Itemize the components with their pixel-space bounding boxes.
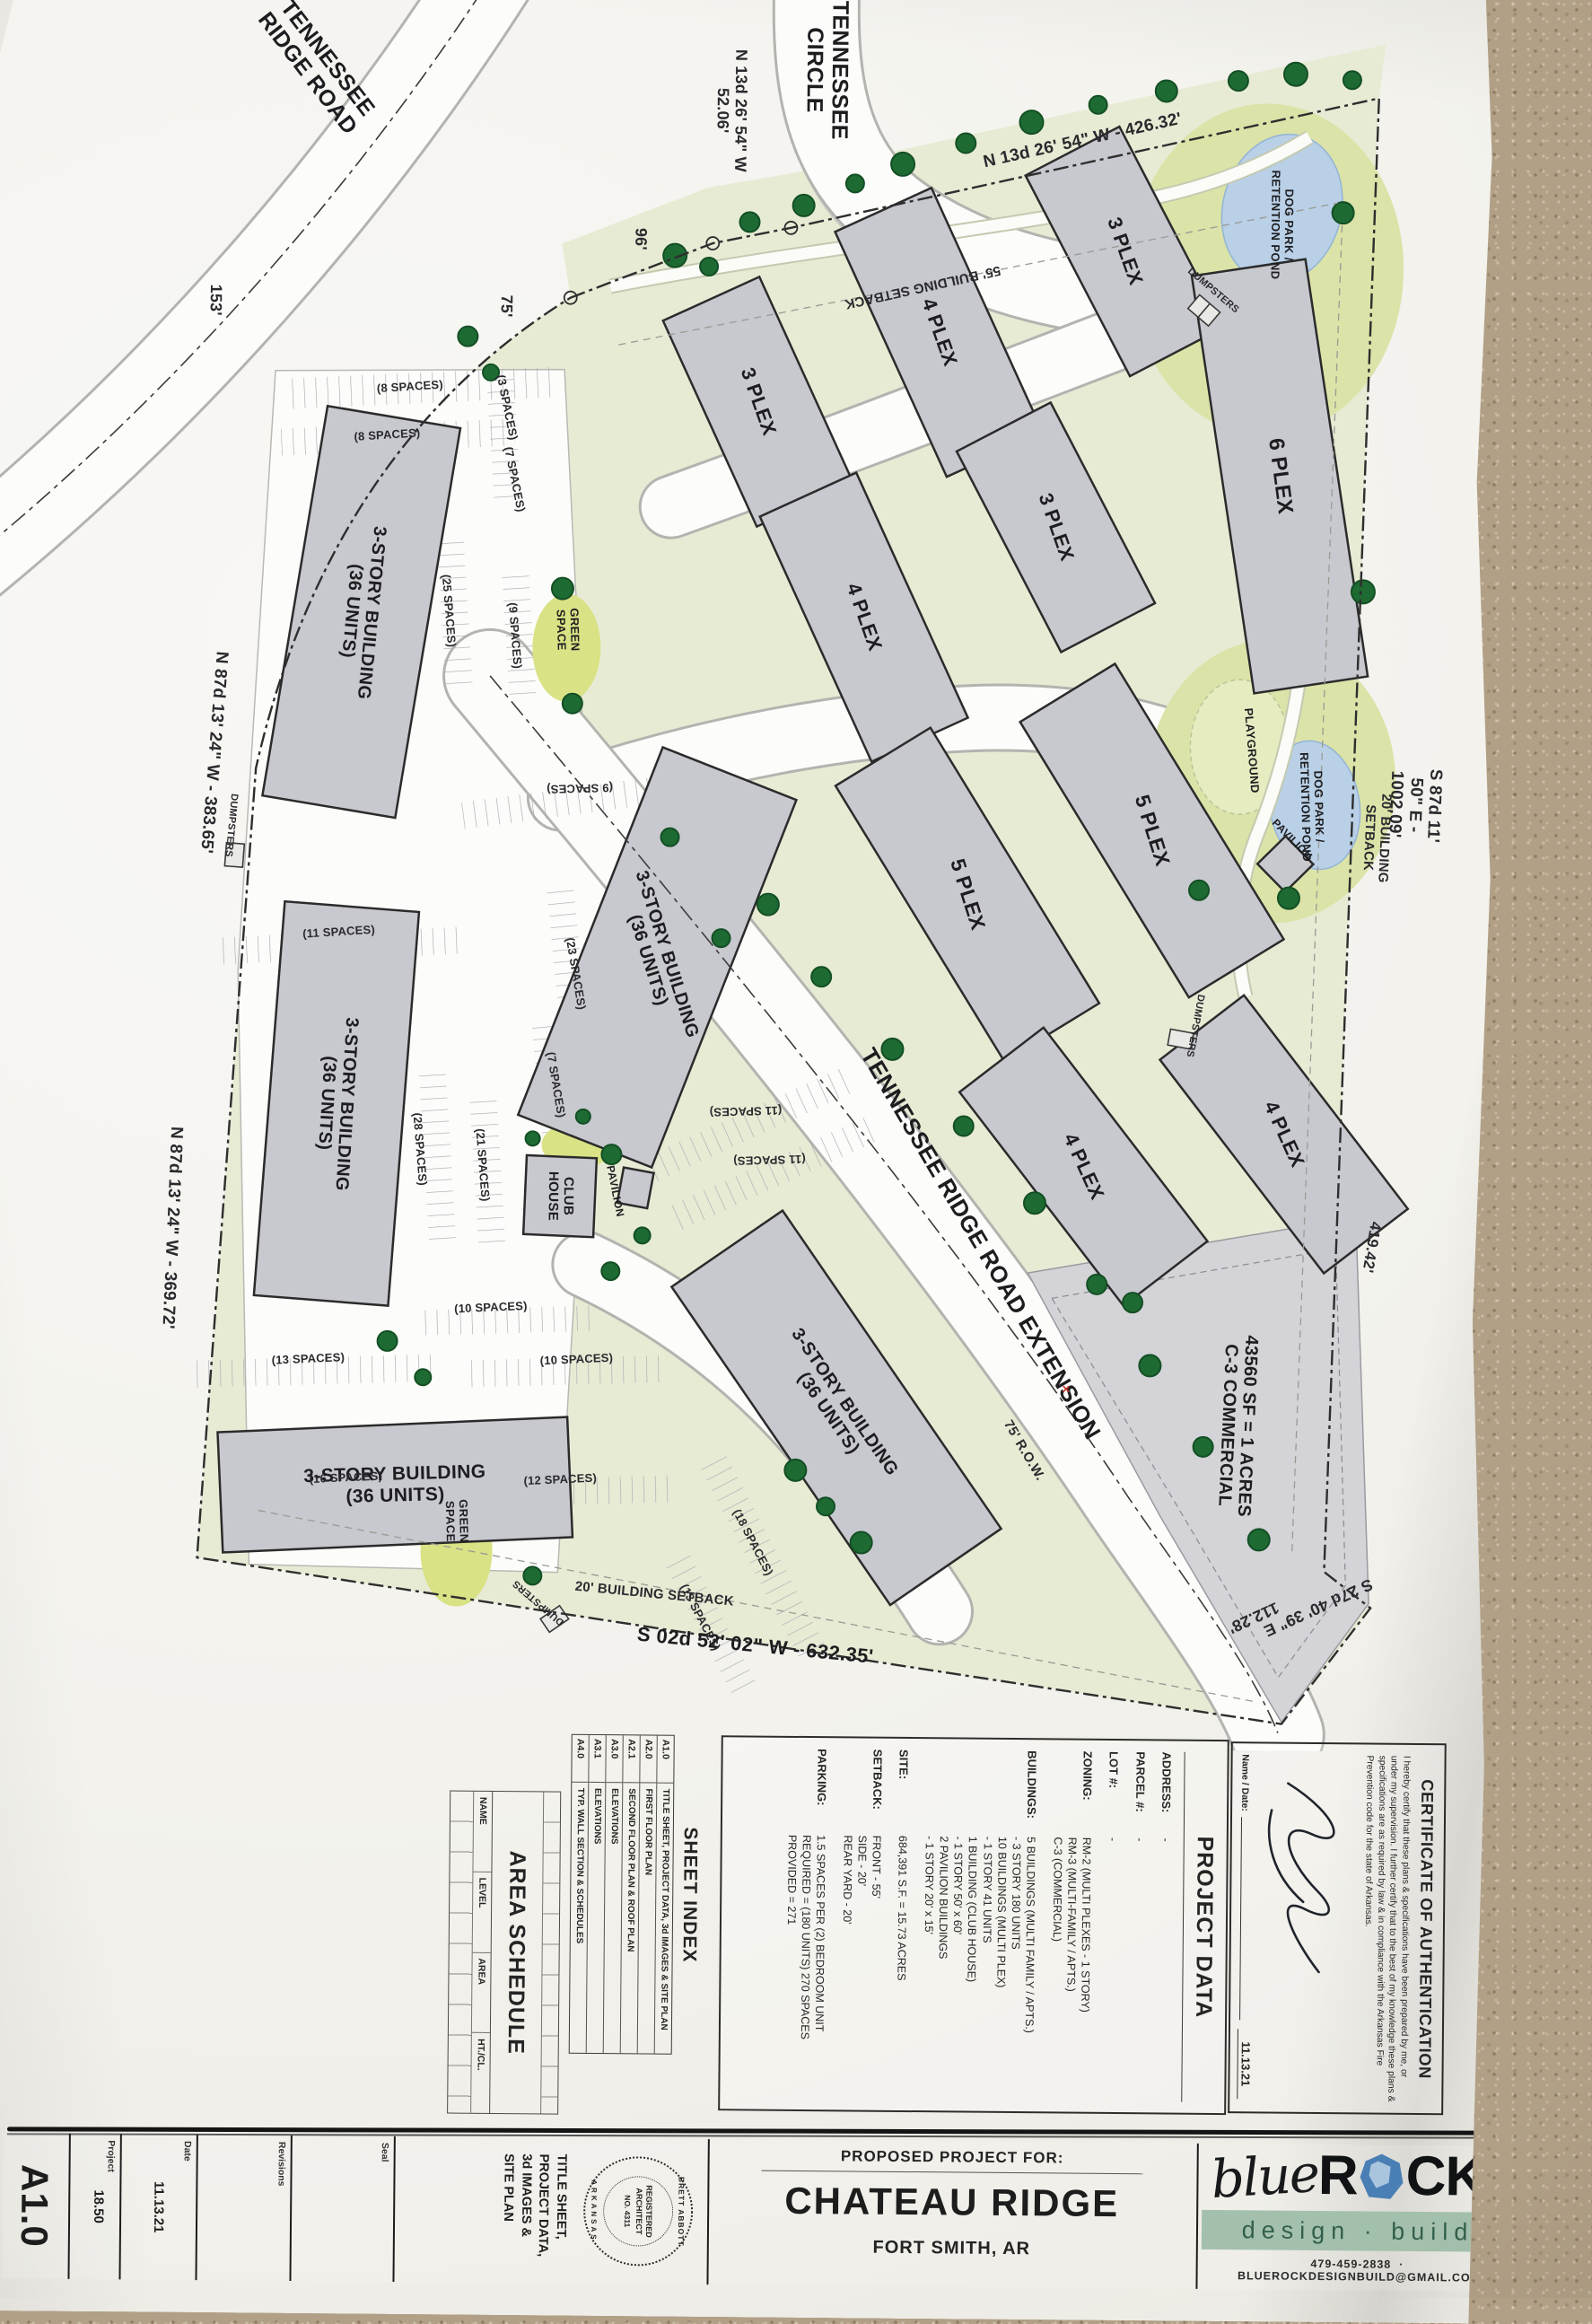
sheet-index-panel: SHEET INDEX A1.0TITLE SHEET, PROJECT DAT… xyxy=(561,1734,702,2055)
project-data-row: ZONING:RM-2 (MULTI PLEXES - 1 STORY)RM-3… xyxy=(1048,1750,1095,2100)
proposed-for-rule xyxy=(762,2171,1143,2175)
sheet-index-row: A2.1SECOND FLOOR PLAN & ROOF PLAN xyxy=(621,1735,641,2053)
sheet-name-cell: FIRST FLOOR PLAN xyxy=(639,1783,656,1881)
sheet-number-cell: A4.0 xyxy=(572,1735,588,1783)
project-data-row: SITE:684,391 S.F. = 15.73 ACRES xyxy=(894,1750,912,2100)
brand-block: blue R CK design · build 479-459-2838 · xyxy=(1197,2144,1521,2292)
date-block: Date 11.13.21 xyxy=(120,2134,197,2280)
stamp-registered: REGISTERED ARCHITECT xyxy=(634,2185,654,2238)
brand-rock-r: R xyxy=(1318,2153,1358,2200)
area-schedule-title: AREA SCHEDULE xyxy=(489,1792,543,2113)
project-data-values: 684,391 S.F. = 15.73 ACRES xyxy=(895,1836,911,1981)
sheet-number-cell: A1.0 xyxy=(657,1736,673,1784)
name-date-line xyxy=(1239,1817,1251,2021)
project-data-label: ZONING: xyxy=(1050,1750,1095,1837)
certificate-date: 11.13.21 xyxy=(1237,2029,1253,2099)
sheet-name-cell: SECOND FLOOR PLAN & ROOF PLAN xyxy=(622,1783,640,1957)
seal-label: Seal xyxy=(380,2143,390,2162)
project-data-row: SETBACK:FRONT - 55'SIDE - 20'REAR YARD -… xyxy=(838,1749,885,2099)
project-data-values: - xyxy=(1159,1837,1173,1841)
revisions-label: Revisions xyxy=(276,2142,286,2187)
project-data-label: SITE: xyxy=(896,1750,911,1836)
project-location: FORT SMITH, AR xyxy=(707,2236,1196,2261)
sheet-index-row: A3.0ELEVATIONS xyxy=(604,1735,624,2053)
sheet-name-cell: TYP. WALL SECTION & SCHEDULES xyxy=(571,1783,589,1950)
project-data-values: FRONT - 55'SIDE - 20'REAR YARD - 20' xyxy=(839,1835,884,1925)
brand-email: BLUEROCKDESIGNBUILD@GMAIL.COM xyxy=(1238,2269,1481,2284)
signature xyxy=(1257,1767,1358,2001)
sheet-number-cell: A3.1 xyxy=(589,1735,605,1783)
site-plan-sheet: TENNESSEE RIDGE ROADTENNESSEE CIRCLETENN… xyxy=(0,0,1534,2324)
project-data-values: - xyxy=(1106,1837,1120,1841)
project-name-block: PROPOSED PROJECT FOR: CHATEAU RIDGE FORT… xyxy=(708,2139,1198,2289)
name-date-label: Name / Date: xyxy=(1239,1754,1251,1811)
project-data-row: PARCEL #:- xyxy=(1130,1751,1148,2101)
sheet-index-row: A1.0TITLE SHEET, PROJECT DATA, 3d IMAGES… xyxy=(655,1736,674,2054)
title-block: blue R CK design · build 479-459-2838 · xyxy=(2,2133,1521,2292)
area-schedule-column: HT./CL. xyxy=(471,2033,490,2113)
project-data-row: ADDRESS:- xyxy=(1156,1751,1174,2101)
brand-phone: 479-459-2838 xyxy=(1310,2258,1391,2271)
brand-separator: · xyxy=(1399,2258,1404,2271)
seal-block: Seal xyxy=(291,2135,395,2282)
stamp-name: BRETT ABBOTT xyxy=(677,2159,687,2265)
project-value: 18.50 xyxy=(90,2134,106,2279)
project-data-label: ADDRESS: xyxy=(1159,1751,1174,1837)
project-number-block: Project 18.50 xyxy=(69,2134,121,2279)
brand-blue-text: blue xyxy=(1210,2150,1319,2203)
proposed-for-label: PROPOSED PROJECT FOR: xyxy=(708,2146,1197,2169)
date-value: 11.13.21 xyxy=(150,2135,166,2280)
project-data-label: SETBACK: xyxy=(840,1749,885,1835)
brand-band: design · build xyxy=(1202,2210,1514,2252)
sheet-name-cell: ELEVATIONS xyxy=(606,1783,623,1850)
project-label: Project xyxy=(106,2140,117,2172)
area-schedule-empty xyxy=(540,1792,560,2113)
stamp-state: ARKANSAS xyxy=(590,2158,599,2264)
project-data-values: RM-2 (MULTI PLEXES - 1 STORY)RM-3 (MULTI… xyxy=(1049,1837,1094,2013)
sheet-number-cell: A2.1 xyxy=(623,1735,639,1783)
sheet-name-cell: TITLE SHEET, PROJECT DATA, 3d IMAGES & S… xyxy=(655,1784,673,2036)
sheet-index-row: A3.1ELEVATIONS xyxy=(587,1735,607,2053)
sheet-number: A1.0 xyxy=(12,2133,56,2278)
architect-stamp: BRETT ABBOTT REGISTERED ARCHITECT NO. 43… xyxy=(583,2156,694,2267)
area-schedule-column: AREA xyxy=(472,1952,491,2033)
project-data-row: BUILDINGS:5 BUILDINGS (MULTI FAMILY / AP… xyxy=(920,1750,1039,2100)
area-schedule-rows xyxy=(448,1792,473,2113)
sheet-index-row: A4.0TYP. WALL SECTION & SCHEDULES xyxy=(570,1735,590,2053)
brand-rock-ck: CK xyxy=(1405,2153,1484,2201)
date-label: Date xyxy=(182,2141,193,2162)
project-data-label: BUILDINGS: xyxy=(922,1750,1039,1837)
sheet-number-block: A1.0 xyxy=(2,2133,70,2279)
revisions-block: Revisions xyxy=(197,2135,292,2281)
sheet-name-cell: ELEVATIONS xyxy=(589,1783,606,1850)
sheet-title: TITLE SHEET, PROJECT DATA, 3d IMAGES & S… xyxy=(493,2144,575,2276)
stamp-block: BRETT ABBOTT REGISTERED ARCHITECT NO. 43… xyxy=(394,2136,709,2285)
area-schedule-column: LEVEL xyxy=(473,1872,492,1953)
area-schedule-column: NAME xyxy=(473,1792,492,1872)
project-data-row: LOT #:- xyxy=(1103,1751,1121,2101)
project-data-label: LOT #: xyxy=(1106,1751,1121,1837)
project-data-values: 5 BUILDINGS (MULTI FAMILY / APTS.)- 3 ST… xyxy=(920,1836,1038,2033)
project-data-label: PARKING: xyxy=(785,1749,830,1835)
brand-contact: 479-459-2838 · BLUEROCKDESIGNBUILD@GMAIL… xyxy=(1198,2257,1521,2285)
project-data-row: PARKING:1.5 SPACES PER (2) BEDROOM UNITR… xyxy=(783,1749,829,2099)
certificate-panel: CERTIFICATE OF AUTHENTICATION I hereby c… xyxy=(1228,1741,1447,2115)
area-schedule-panel: AREA SCHEDULE NAMELEVELAREAHT./CL. xyxy=(447,1791,561,2115)
sheet-index-title: SHEET INDEX xyxy=(678,1735,702,2055)
project-data-title: PROJECT DATA xyxy=(1181,1752,1218,2102)
project-data-label: PARCEL #: xyxy=(1132,1751,1147,1837)
certificate-body: I hereby certify that these plans & spec… xyxy=(1360,1755,1413,2101)
project-data-values: - xyxy=(1132,1837,1146,1841)
sheet-number-cell: A3.0 xyxy=(606,1735,622,1783)
rock-icon xyxy=(1358,2152,1404,2200)
sheet-number-cell: A2.0 xyxy=(640,1735,656,1783)
brand-tagline: design · build xyxy=(1242,2216,1474,2246)
project-name: CHATEAU RIDGE xyxy=(707,2179,1196,2226)
site-plan-drawing xyxy=(0,0,1519,1753)
stamp-number: NO. 4311 xyxy=(623,2195,632,2227)
certificate-title: CERTIFICATE OF AUTHENTICATION xyxy=(1414,1756,1437,2102)
project-data-values: 1.5 SPACES PER (2) BEDROOM UNITREQUIRED … xyxy=(783,1835,829,2039)
project-data-panel: PROJECT DATA ADDRESS:-PARCEL #:-LOT #:-Z… xyxy=(718,1735,1229,2115)
